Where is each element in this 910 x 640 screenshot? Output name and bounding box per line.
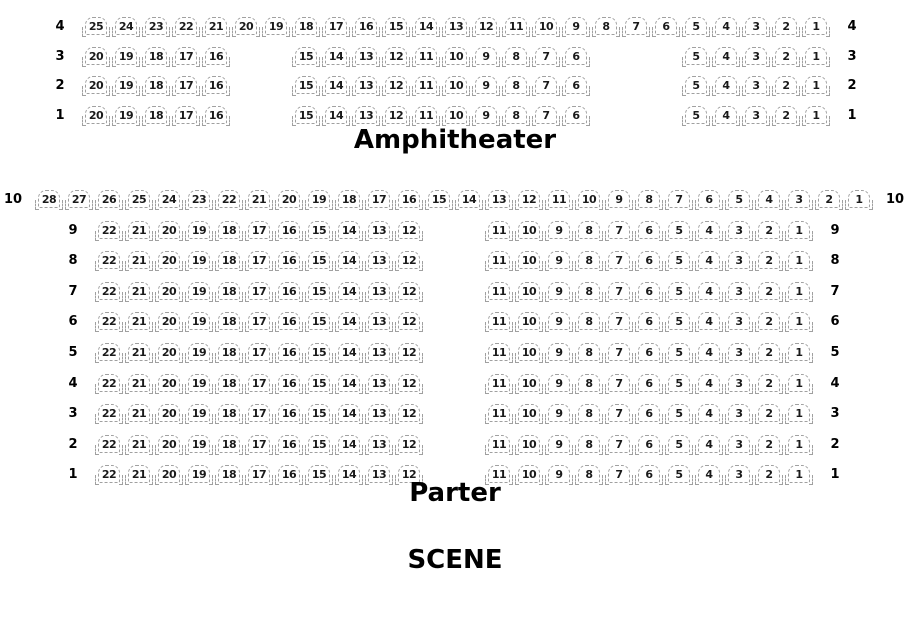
seat[interactable]: 14 <box>458 190 480 208</box>
seat[interactable]: 18 <box>218 435 240 453</box>
seat[interactable]: 17 <box>248 374 270 392</box>
seat[interactable]: 11 <box>488 404 510 422</box>
seat[interactable]: 19 <box>188 221 210 239</box>
seat[interactable]: 10 <box>445 106 467 124</box>
seat[interactable]: 22 <box>98 251 120 269</box>
seat[interactable]: 20 <box>158 404 180 422</box>
seat[interactable]: 9 <box>548 343 570 361</box>
seat[interactable]: 20 <box>85 106 107 124</box>
seat[interactable]: 14 <box>338 312 360 330</box>
seat[interactable]: 7 <box>608 435 630 453</box>
seat[interactable]: 19 <box>115 76 137 94</box>
seat[interactable]: 6 <box>638 312 660 330</box>
seat[interactable]: 7 <box>608 374 630 392</box>
seat[interactable]: 17 <box>248 435 270 453</box>
seat[interactable]: 17 <box>248 282 270 300</box>
seat[interactable]: 3 <box>745 17 767 35</box>
seat[interactable]: 7 <box>668 190 690 208</box>
seat-number: 5 <box>735 194 742 205</box>
seat[interactable]: 20 <box>278 190 300 208</box>
seat[interactable]: 20 <box>235 17 257 35</box>
seat[interactable]: 6 <box>638 404 660 422</box>
seat[interactable]: 5 <box>685 76 707 94</box>
seat[interactable]: 6 <box>565 47 587 65</box>
seat[interactable]: 21 <box>128 374 150 392</box>
seat[interactable]: 8 <box>578 343 600 361</box>
seat[interactable]: 10 <box>578 190 600 208</box>
seat[interactable]: 15 <box>428 190 450 208</box>
seat[interactable]: 12 <box>398 221 420 239</box>
seat-number: 9 <box>555 408 562 419</box>
seat[interactable]: 6 <box>655 17 677 35</box>
seat[interactable]: 10 <box>445 76 467 94</box>
seat[interactable]: 12 <box>398 343 420 361</box>
seat[interactable]: 6 <box>638 374 660 392</box>
seat[interactable]: 5 <box>685 47 707 65</box>
seat[interactable]: 12 <box>398 404 420 422</box>
seat[interactable]: 2 <box>818 190 840 208</box>
seat[interactable]: 14 <box>338 343 360 361</box>
seat[interactable]: 5 <box>685 17 707 35</box>
seat[interactable]: 13 <box>488 190 510 208</box>
seat[interactable]: 10 <box>518 312 540 330</box>
seat[interactable]: 1 <box>805 76 827 94</box>
seat[interactable]: 14 <box>338 374 360 392</box>
seat[interactable]: 21 <box>128 282 150 300</box>
seat[interactable]: 5 <box>668 343 690 361</box>
seat[interactable]: 18 <box>218 343 240 361</box>
seat[interactable]: 12 <box>398 251 420 269</box>
seat[interactable]: 20 <box>158 221 180 239</box>
seat[interactable]: 11 <box>488 221 510 239</box>
seat[interactable]: 16 <box>205 106 227 124</box>
seat[interactable]: 9 <box>548 312 570 330</box>
seat[interactable]: 15 <box>308 251 330 269</box>
seat[interactable]: 16 <box>355 17 377 35</box>
seat[interactable]: 15 <box>308 435 330 453</box>
seat[interactable]: 21 <box>248 190 270 208</box>
seat[interactable]: 11 <box>415 106 437 124</box>
seat[interactable]: 22 <box>98 374 120 392</box>
seat[interactable]: 10 <box>518 251 540 269</box>
seat[interactable]: 2 <box>758 251 780 269</box>
seat-number: 20 <box>239 21 253 32</box>
seat[interactable]: 17 <box>248 404 270 422</box>
seat[interactable]: 10 <box>518 435 540 453</box>
seat[interactable]: 5 <box>668 251 690 269</box>
seat[interactable]: 15 <box>308 312 330 330</box>
seat[interactable]: 6 <box>638 251 660 269</box>
seat[interactable]: 8 <box>578 374 600 392</box>
seat[interactable]: 8 <box>505 47 527 65</box>
seat[interactable]: 1 <box>788 221 810 239</box>
seat[interactable]: 8 <box>578 221 600 239</box>
seat[interactable]: 18 <box>145 47 167 65</box>
seat[interactable]: 16 <box>278 404 300 422</box>
seat[interactable]: 20 <box>158 282 180 300</box>
seat[interactable]: 13 <box>368 251 390 269</box>
seat[interactable]: 6 <box>565 106 587 124</box>
seat[interactable]: 21 <box>128 251 150 269</box>
seat[interactable]: 10 <box>535 17 557 35</box>
seat[interactable]: 12 <box>398 312 420 330</box>
seat[interactable]: 3 <box>728 435 750 453</box>
seat[interactable]: 18 <box>218 404 240 422</box>
seat[interactable]: 16 <box>278 312 300 330</box>
seat[interactable]: 14 <box>338 435 360 453</box>
seat[interactable]: 12 <box>398 374 420 392</box>
seat[interactable]: 17 <box>248 251 270 269</box>
seat[interactable]: 9 <box>548 435 570 453</box>
seat[interactable]: 1 <box>788 404 810 422</box>
seat[interactable]: 7 <box>608 312 630 330</box>
seat[interactable]: 5 <box>668 404 690 422</box>
seat[interactable]: 4 <box>698 312 720 330</box>
seat[interactable]: 14 <box>325 47 347 65</box>
seat[interactable]: 16 <box>278 251 300 269</box>
seat[interactable]: 2 <box>775 106 797 124</box>
seat[interactable]: 7 <box>535 47 557 65</box>
seat-number: 22 <box>222 194 236 205</box>
seat[interactable]: 4 <box>698 221 720 239</box>
seat[interactable]: 18 <box>218 282 240 300</box>
seat[interactable]: 8 <box>578 282 600 300</box>
seat[interactable]: 13 <box>368 343 390 361</box>
seat[interactable]: 18 <box>218 312 240 330</box>
seat[interactable]: 11 <box>488 312 510 330</box>
seat[interactable]: 1 <box>788 374 810 392</box>
seat[interactable]: 23 <box>188 190 210 208</box>
seat[interactable]: 17 <box>248 221 270 239</box>
seat-number: 12 <box>389 51 403 62</box>
seat[interactable]: 8 <box>578 404 600 422</box>
seat[interactable]: 14 <box>338 282 360 300</box>
seat[interactable]: 12 <box>385 106 407 124</box>
seat[interactable]: 19 <box>115 106 137 124</box>
seat[interactable]: 20 <box>158 374 180 392</box>
seat[interactable]: 14 <box>325 76 347 94</box>
seat[interactable]: 17 <box>175 76 197 94</box>
seat[interactable]: 20 <box>158 312 180 330</box>
seat[interactable]: 16 <box>278 343 300 361</box>
seat[interactable]: 6 <box>698 190 720 208</box>
seat[interactable]: 3 <box>728 221 750 239</box>
seat[interactable]: 3 <box>728 404 750 422</box>
seat[interactable]: 17 <box>368 190 390 208</box>
seat[interactable]: 20 <box>85 76 107 94</box>
seat-number: 16 <box>282 286 296 297</box>
seat[interactable]: 10 <box>518 221 540 239</box>
seat[interactable]: 25 <box>128 190 150 208</box>
seat[interactable]: 15 <box>308 374 330 392</box>
seat[interactable]: 2 <box>758 343 780 361</box>
seat[interactable]: 22 <box>175 17 197 35</box>
seat[interactable]: 16 <box>205 76 227 94</box>
seat[interactable]: 14 <box>415 17 437 35</box>
seat[interactable]: 8 <box>638 190 660 208</box>
seat[interactable]: 13 <box>355 106 377 124</box>
seat[interactable]: 5 <box>668 282 690 300</box>
seat[interactable]: 4 <box>698 404 720 422</box>
seat[interactable]: 2 <box>758 282 780 300</box>
seat[interactable]: 19 <box>188 251 210 269</box>
seat[interactable]: 22 <box>98 221 120 239</box>
seat[interactable]: 4 <box>715 17 737 35</box>
seat[interactable]: 7 <box>625 17 647 35</box>
seat[interactable]: 21 <box>128 435 150 453</box>
seat[interactable]: 8 <box>578 251 600 269</box>
seat[interactable]: 24 <box>158 190 180 208</box>
seat[interactable]: 13 <box>355 76 377 94</box>
seat[interactable]: 25 <box>85 17 107 35</box>
seat[interactable]: 12 <box>385 47 407 65</box>
seat[interactable]: 4 <box>698 374 720 392</box>
seat[interactable]: 18 <box>145 76 167 94</box>
seat[interactable]: 16 <box>398 190 420 208</box>
seat[interactable]: 20 <box>158 251 180 269</box>
seat[interactable]: 8 <box>578 312 600 330</box>
seat[interactable]: 15 <box>308 343 330 361</box>
seat[interactable]: 1 <box>788 312 810 330</box>
seat[interactable]: 16 <box>278 282 300 300</box>
seat[interactable]: 18 <box>145 106 167 124</box>
seat[interactable]: 12 <box>398 435 420 453</box>
seat[interactable]: 11 <box>488 251 510 269</box>
seat[interactable]: 13 <box>368 374 390 392</box>
seat[interactable]: 6 <box>638 343 660 361</box>
seat[interactable]: 4 <box>698 251 720 269</box>
seat[interactable]: 3 <box>728 251 750 269</box>
seat[interactable]: 8 <box>595 17 617 35</box>
seat[interactable]: 4 <box>715 106 737 124</box>
seat[interactable]: 3 <box>728 312 750 330</box>
seat[interactable]: 2 <box>758 435 780 453</box>
seat[interactable]: 13 <box>368 282 390 300</box>
seat[interactable]: 16 <box>278 435 300 453</box>
seat[interactable]: 11 <box>505 17 527 35</box>
seat[interactable]: 9 <box>548 282 570 300</box>
seat[interactable]: 19 <box>308 190 330 208</box>
seat[interactable]: 19 <box>188 343 210 361</box>
seat[interactable]: 18 <box>218 251 240 269</box>
seat[interactable]: 19 <box>265 17 287 35</box>
seat[interactable]: 21 <box>205 17 227 35</box>
seat[interactable]: 13 <box>445 17 467 35</box>
seat[interactable]: 1 <box>788 251 810 269</box>
seat-number: 10 <box>522 286 536 297</box>
seat[interactable]: 26 <box>98 190 120 208</box>
seat[interactable]: 15 <box>308 282 330 300</box>
seat[interactable]: 10 <box>518 282 540 300</box>
seat[interactable]: 19 <box>188 435 210 453</box>
seat[interactable]: 13 <box>368 404 390 422</box>
seat[interactable]: 9 <box>475 47 497 65</box>
seat[interactable]: 18 <box>218 374 240 392</box>
seat[interactable]: 1 <box>805 47 827 65</box>
seat[interactable]: 18 <box>218 221 240 239</box>
seat[interactable]: 2 <box>775 76 797 94</box>
seat[interactable]: 1 <box>788 343 810 361</box>
seat[interactable]: 7 <box>608 221 630 239</box>
seat[interactable]: 11 <box>488 435 510 453</box>
seat[interactable]: 24 <box>115 17 137 35</box>
seat[interactable]: 1 <box>788 435 810 453</box>
seat[interactable]: 22 <box>98 343 120 361</box>
seat-number: 8 <box>585 408 592 419</box>
seat[interactable]: 16 <box>205 47 227 65</box>
seat[interactable]: 15 <box>308 404 330 422</box>
seat[interactable]: 14 <box>338 251 360 269</box>
seat[interactable]: 10 <box>518 374 540 392</box>
seat[interactable]: 9 <box>608 190 630 208</box>
seat[interactable]: 10 <box>445 47 467 65</box>
seat[interactable]: 13 <box>368 312 390 330</box>
seat[interactable]: 15 <box>295 106 317 124</box>
seat[interactable]: 15 <box>295 76 317 94</box>
seat[interactable]: 13 <box>355 47 377 65</box>
seat[interactable]: 16 <box>278 374 300 392</box>
seat[interactable]: 22 <box>98 282 120 300</box>
seat[interactable]: 17 <box>175 106 197 124</box>
seat[interactable]: 3 <box>745 106 767 124</box>
seat[interactable]: 11 <box>548 190 570 208</box>
seat[interactable]: 1 <box>805 106 827 124</box>
seat[interactable]: 12 <box>518 190 540 208</box>
seat[interactable]: 7 <box>535 76 557 94</box>
seat[interactable]: 19 <box>188 282 210 300</box>
seat[interactable]: 18 <box>338 190 360 208</box>
seat[interactable]: 28 <box>38 190 60 208</box>
seat[interactable]: 21 <box>128 343 150 361</box>
seat[interactable]: 5 <box>685 106 707 124</box>
seat-number: 6 <box>645 378 652 389</box>
seat[interactable]: 17 <box>248 343 270 361</box>
seat[interactable]: 4 <box>758 190 780 208</box>
seat[interactable]: 6 <box>638 282 660 300</box>
seat[interactable]: 9 <box>475 76 497 94</box>
seat[interactable]: 5 <box>668 435 690 453</box>
seat[interactable]: 2 <box>775 47 797 65</box>
seat[interactable]: 11 <box>488 282 510 300</box>
seat[interactable]: 9 <box>548 374 570 392</box>
seat[interactable]: 3 <box>788 190 810 208</box>
seat[interactable]: 11 <box>415 76 437 94</box>
seat[interactable]: 18 <box>295 17 317 35</box>
seat[interactable]: 2 <box>758 312 780 330</box>
seat[interactable]: 4 <box>698 282 720 300</box>
seat[interactable]: 6 <box>565 76 587 94</box>
seat[interactable]: 8 <box>505 76 527 94</box>
seat[interactable]: 1 <box>788 282 810 300</box>
seat[interactable]: 9 <box>548 221 570 239</box>
seat[interactable]: 3 <box>745 47 767 65</box>
seat[interactable]: 9 <box>475 106 497 124</box>
seat[interactable]: 3 <box>728 374 750 392</box>
seat[interactable]: 5 <box>668 374 690 392</box>
seat[interactable]: 2 <box>758 374 780 392</box>
seat[interactable]: 6 <box>638 221 660 239</box>
seat[interactable]: 20 <box>158 435 180 453</box>
seat[interactable]: 14 <box>338 404 360 422</box>
seat[interactable]: 19 <box>188 312 210 330</box>
seat[interactable]: 11 <box>488 374 510 392</box>
seat[interactable]: 17 <box>325 17 347 35</box>
seat[interactable]: 12 <box>385 76 407 94</box>
seat[interactable]: 21 <box>128 221 150 239</box>
seat[interactable]: 5 <box>668 312 690 330</box>
seat[interactable]: 14 <box>325 106 347 124</box>
seat[interactable]: 19 <box>188 404 210 422</box>
seat[interactable]: 7 <box>608 343 630 361</box>
seat[interactable]: 10 <box>518 404 540 422</box>
seat[interactable]: 7 <box>608 251 630 269</box>
seat[interactable]: 4 <box>698 435 720 453</box>
seat[interactable]: 21 <box>128 404 150 422</box>
seat[interactable]: 8 <box>578 435 600 453</box>
seat[interactable]: 2 <box>758 404 780 422</box>
seat[interactable]: 16 <box>278 221 300 239</box>
seat[interactable]: 11 <box>415 47 437 65</box>
seat[interactable]: 22 <box>98 312 120 330</box>
seat[interactable]: 1 <box>848 190 870 208</box>
seat[interactable]: 10 <box>518 343 540 361</box>
seat[interactable]: 9 <box>565 17 587 35</box>
seat[interactable]: 13 <box>368 435 390 453</box>
seat[interactable]: 2 <box>758 221 780 239</box>
seat[interactable]: 12 <box>398 282 420 300</box>
seat[interactable]: 4 <box>715 47 737 65</box>
seat[interactable]: 5 <box>668 221 690 239</box>
seat[interactable]: 17 <box>248 312 270 330</box>
seat[interactable]: 19 <box>115 47 137 65</box>
seat[interactable]: 20 <box>85 47 107 65</box>
seat[interactable]: 9 <box>548 251 570 269</box>
seat-number: 17 <box>252 286 266 297</box>
seat[interactable]: 22 <box>98 404 120 422</box>
seat[interactable]: 12 <box>475 17 497 35</box>
seat[interactable]: 7 <box>535 106 557 124</box>
seat[interactable]: 19 <box>188 374 210 392</box>
seat[interactable]: 3 <box>728 343 750 361</box>
seat[interactable]: 27 <box>68 190 90 208</box>
seat[interactable]: 6 <box>638 435 660 453</box>
seat[interactable]: 20 <box>158 343 180 361</box>
seat[interactable]: 4 <box>698 343 720 361</box>
seat[interactable]: 15 <box>308 221 330 239</box>
seat[interactable]: 1 <box>805 17 827 35</box>
seat[interactable]: 15 <box>295 47 317 65</box>
seat[interactable]: 7 <box>608 404 630 422</box>
seat[interactable]: 3 <box>745 76 767 94</box>
seat[interactable]: 22 <box>218 190 240 208</box>
seat[interactable]: 4 <box>715 76 737 94</box>
seat[interactable]: 2 <box>775 17 797 35</box>
seat[interactable]: 5 <box>728 190 750 208</box>
seat[interactable]: 17 <box>175 47 197 65</box>
seat[interactable]: 9 <box>548 404 570 422</box>
seat[interactable]: 13 <box>368 221 390 239</box>
seat[interactable]: 14 <box>338 221 360 239</box>
seat[interactable]: 15 <box>385 17 407 35</box>
seat[interactable]: 21 <box>128 312 150 330</box>
seat[interactable]: 7 <box>608 282 630 300</box>
seat[interactable]: 8 <box>505 106 527 124</box>
seat[interactable]: 23 <box>145 17 167 35</box>
seat-number: 21 <box>132 439 146 450</box>
seat[interactable]: 3 <box>728 282 750 300</box>
seat[interactable]: 11 <box>488 343 510 361</box>
seat[interactable]: 22 <box>98 435 120 453</box>
